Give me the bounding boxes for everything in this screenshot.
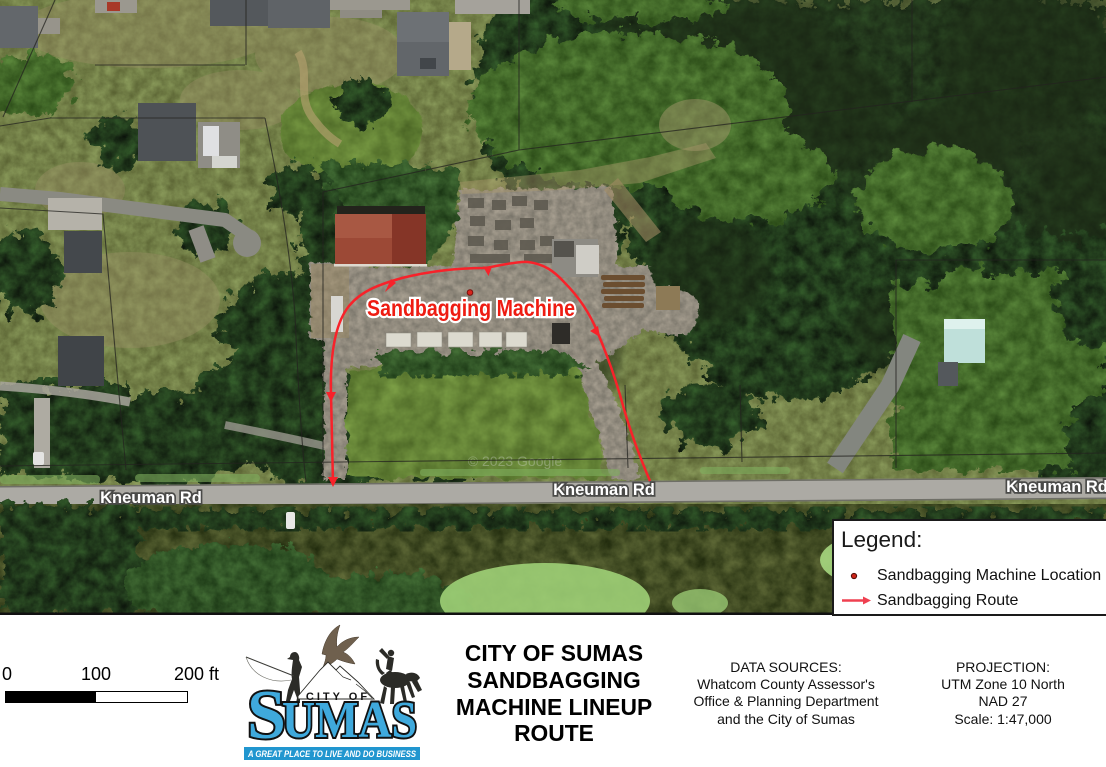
svg-text:S: S [247,677,286,754]
svg-text:Sandbagging Machine: Sandbagging Machine [367,295,575,321]
svg-text:Kneuman Rd: Kneuman Rd [100,489,202,507]
svg-text:A GREAT PLACE TO LIVE AND DO B: A GREAT PLACE TO LIVE AND DO BUSINESS [247,749,416,759]
svg-text:Kneuman Rd: Kneuman Rd [553,481,655,499]
svg-text:UMAS: UMAS [282,692,417,749]
svg-text:Kneuman Rd: Kneuman Rd [1006,478,1106,496]
svg-text:© 2023 Google: © 2023 Google [468,453,563,469]
